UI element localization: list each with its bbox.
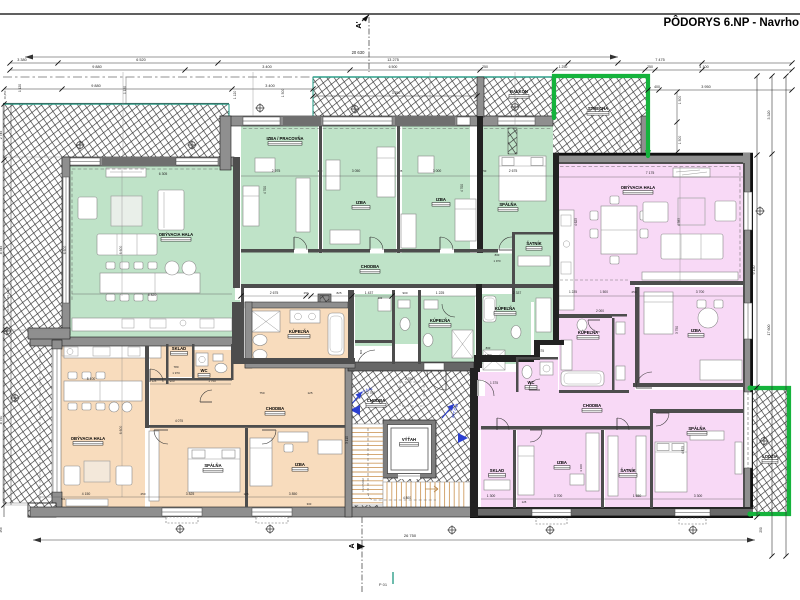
svg-text:3 400: 3 400 <box>265 84 275 88</box>
svg-text:3 100: 3 100 <box>579 464 583 472</box>
svg-text:300: 300 <box>471 500 476 504</box>
svg-text:1 437: 1 437 <box>365 291 374 295</box>
svg-text:825: 825 <box>336 291 341 295</box>
svg-text:3 750: 3 750 <box>675 326 679 334</box>
svg-text:SPÁLŇA: SPÁLŇA <box>688 426 705 431</box>
svg-text:3 400: 3 400 <box>262 65 272 69</box>
svg-text:300: 300 <box>307 502 312 506</box>
svg-text:IZBA: IZBA <box>295 462 305 467</box>
svg-text:800: 800 <box>486 346 491 350</box>
svg-text:IZBA: IZBA <box>557 460 567 465</box>
svg-text:2 000: 2 000 <box>596 309 604 313</box>
svg-text:3 110: 3 110 <box>345 436 349 444</box>
svg-text:OBÝVACIA HALA: OBÝVACIA HALA <box>71 436 105 441</box>
svg-text:A: A <box>349 543 356 548</box>
svg-text:3 250: 3 250 <box>392 91 401 95</box>
svg-text:7 475: 7 475 <box>655 58 665 62</box>
svg-text:20 630: 20 630 <box>352 50 365 55</box>
svg-text:3 380: 3 380 <box>17 58 27 62</box>
svg-text:1 120: 1 120 <box>18 84 22 92</box>
svg-text:2 000: 2 000 <box>485 353 492 357</box>
svg-text:125: 125 <box>522 500 527 504</box>
svg-text:WC: WC <box>201 368 208 373</box>
svg-text:6 820: 6 820 <box>148 293 157 297</box>
svg-text:SPÁLŇA: SPÁLŇA <box>204 463 221 468</box>
svg-text:600: 600 <box>359 349 363 354</box>
svg-text:±0,450: ±0,450 <box>3 90 7 99</box>
svg-text:250: 250 <box>482 65 488 69</box>
svg-text:1 225: 1 225 <box>436 291 445 295</box>
svg-text:780: 780 <box>173 365 178 369</box>
svg-text:KÚPEĽŇA: KÚPEĽŇA <box>495 306 515 311</box>
svg-text:SKLAD: SKLAD <box>172 346 186 351</box>
svg-text:3 300: 3 300 <box>694 494 703 498</box>
svg-text:IZBA / PRACOVŇA: IZBA / PRACOVŇA <box>266 136 303 141</box>
svg-text:CHODBA: CHODBA <box>266 406 284 411</box>
svg-text:1 120: 1 120 <box>233 91 237 100</box>
svg-text:3 700: 3 700 <box>696 290 705 294</box>
svg-text:4 100: 4 100 <box>699 65 709 69</box>
svg-text:4 875: 4 875 <box>681 446 685 454</box>
svg-text:9 130: 9 130 <box>752 266 756 275</box>
svg-text:ŠATNÍK: ŠATNÍK <box>620 468 635 473</box>
svg-text:8 545: 8 545 <box>0 246 3 255</box>
svg-text:4 700: 4 700 <box>263 186 267 194</box>
svg-text:6 600: 6 600 <box>119 246 123 255</box>
svg-text:SKLAD: SKLAD <box>490 468 504 473</box>
svg-text:26 750: 26 750 <box>404 533 417 538</box>
svg-text:250: 250 <box>759 527 763 533</box>
svg-text:3 850: 3 850 <box>289 492 298 496</box>
svg-text:1 550: 1 550 <box>633 494 642 498</box>
svg-text:6 500: 6 500 <box>389 65 398 69</box>
svg-text:3 000: 3 000 <box>433 169 442 173</box>
svg-text:5 100: 5 100 <box>87 377 96 381</box>
svg-text:125: 125 <box>307 391 312 395</box>
svg-text:250: 250 <box>140 492 145 496</box>
svg-text:125: 125 <box>243 492 248 496</box>
svg-text:2 700: 2 700 <box>367 391 375 395</box>
svg-text:KÚPEĽŇA: KÚPEĽŇA <box>430 318 450 323</box>
svg-text:1 970: 1 970 <box>494 259 501 263</box>
svg-text:A': A' <box>354 21 363 28</box>
svg-text:3 825: 3 825 <box>186 492 195 496</box>
svg-text:1 500: 1 500 <box>600 290 608 294</box>
svg-text:1 375: 1 375 <box>490 381 498 385</box>
svg-text:4 625: 4 625 <box>574 218 578 226</box>
svg-text:CHODBA: CHODBA <box>367 398 385 403</box>
svg-text:250: 250 <box>647 65 653 69</box>
svg-text:IZBA: IZBA <box>436 197 446 202</box>
svg-text:IZBA: IZBA <box>356 200 366 205</box>
svg-text:1 120: 1 120 <box>123 86 127 94</box>
svg-text:1 225: 1 225 <box>569 290 577 294</box>
svg-text:2 700: 2 700 <box>405 377 413 381</box>
svg-text:LODŽIA: LODŽIA <box>762 454 778 459</box>
svg-text:13 275: 13 275 <box>387 58 399 62</box>
svg-text:750: 750 <box>259 391 264 395</box>
svg-text:CHODBA: CHODBA <box>361 264 379 269</box>
svg-text:VÝŤAH: VÝŤAH <box>402 437 416 442</box>
svg-text:CHODBA: CHODBA <box>583 403 601 408</box>
svg-text:4 585: 4 585 <box>677 218 681 226</box>
svg-text:9 880: 9 880 <box>91 84 101 88</box>
svg-text:6 520: 6 520 <box>136 58 146 62</box>
svg-text:STRECHA: STRECHA <box>588 106 608 111</box>
svg-text:1 500: 1 500 <box>281 89 285 98</box>
svg-text:4 150: 4 150 <box>82 492 91 496</box>
svg-text:BALKÓN: BALKÓN <box>510 89 528 94</box>
svg-text:1 300: 1 300 <box>487 494 496 498</box>
svg-text:7 175: 7 175 <box>646 171 655 175</box>
svg-text:3 050: 3 050 <box>352 169 361 173</box>
svg-text:3 320: 3 320 <box>767 111 771 120</box>
svg-text:4 700: 4 700 <box>460 184 464 192</box>
svg-text:3 950: 3 950 <box>701 85 711 89</box>
svg-text:P 01: P 01 <box>379 582 388 587</box>
svg-text:3 700: 3 700 <box>554 494 563 498</box>
svg-text:2 975: 2 975 <box>272 169 281 173</box>
svg-text:900: 900 <box>402 291 407 295</box>
svg-text:8 750: 8 750 <box>0 416 3 425</box>
svg-text:400: 400 <box>654 85 660 89</box>
svg-text:2 675: 2 675 <box>509 169 518 173</box>
svg-text:1 500: 1 500 <box>678 96 682 105</box>
svg-text:250: 250 <box>304 291 309 295</box>
svg-text:250: 250 <box>0 527 3 532</box>
svg-text:100: 100 <box>378 296 383 300</box>
svg-text:OBÝVACIA HALA: OBÝVACIA HALA <box>621 185 655 190</box>
svg-text:9 880: 9 880 <box>92 65 102 69</box>
svg-text:PÔDORYS 6.NP - Navrho: PÔDORYS 6.NP - Navrho <box>664 16 799 29</box>
svg-text:1 970: 1 970 <box>172 371 180 375</box>
svg-text:6 600: 6 600 <box>119 426 123 435</box>
svg-text:WC: WC <box>528 380 535 385</box>
svg-text:17x175/292: 17x175/292 <box>361 478 365 492</box>
svg-text:ŠATNÍK: ŠATNÍK <box>526 241 541 246</box>
svg-text:OBÝVACIA HALA: OBÝVACIA HALA <box>159 232 193 237</box>
svg-text:1 675: 1 675 <box>536 349 544 353</box>
svg-text:250: 250 <box>631 290 636 294</box>
svg-text:6 305: 6 305 <box>159 172 168 176</box>
svg-text:800: 800 <box>495 253 500 257</box>
svg-text:500: 500 <box>61 497 66 501</box>
svg-text:4 075: 4 075 <box>175 419 183 423</box>
svg-text:±0,000 = 345,1120: ±0,000 = 345,1120 <box>6 287 10 312</box>
svg-text:KÚPEĽŇA: KÚPEĽŇA <box>289 329 309 334</box>
svg-text:17 600: 17 600 <box>767 325 771 336</box>
svg-text:2 337: 2 337 <box>513 291 522 295</box>
svg-text:IZBA: IZBA <box>691 328 701 333</box>
svg-text:6 600: 6 600 <box>63 246 67 255</box>
svg-text:1 500: 1 500 <box>678 136 682 145</box>
svg-text:SPÁLŇA: SPÁLŇA <box>499 202 516 207</box>
svg-text:4 800: 4 800 <box>403 496 411 500</box>
svg-text:2 675: 2 675 <box>270 291 279 295</box>
svg-text:1 250: 1 250 <box>559 65 568 69</box>
svg-text:2 745: 2 745 <box>0 131 3 140</box>
